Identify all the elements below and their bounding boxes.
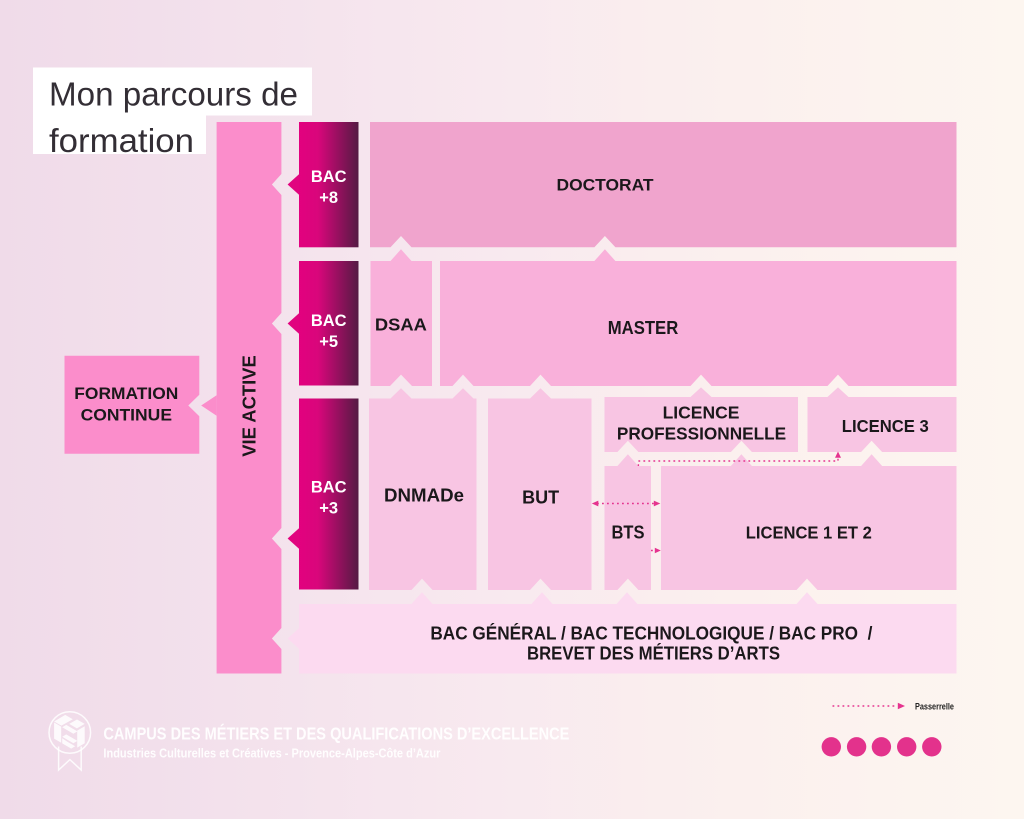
svg-text:CONTINUE: CONTINUE bbox=[81, 407, 172, 425]
svg-text:CAMPUS DES MÉTIERS ET DES QUAL: CAMPUS DES MÉTIERS ET DES QUALIFICATIONS… bbox=[103, 723, 569, 744]
svg-text:BTS: BTS bbox=[612, 523, 645, 543]
svg-text:MASTER: MASTER bbox=[608, 318, 679, 338]
svg-text:BREVET DES MÉTIERS D’ARTS: BREVET DES MÉTIERS D’ARTS bbox=[527, 643, 780, 664]
svg-text:+3: +3 bbox=[319, 500, 338, 518]
svg-text:FORMATION: FORMATION bbox=[74, 385, 178, 403]
svg-text:DOCTORAT: DOCTORAT bbox=[557, 175, 655, 194]
svg-text:BUT: BUT bbox=[522, 488, 559, 508]
svg-text:BAC: BAC bbox=[311, 479, 347, 497]
svg-text:LICENCE: LICENCE bbox=[663, 403, 740, 423]
svg-text:Mon parcours de: Mon parcours de bbox=[49, 76, 298, 113]
svg-text:PROFESSIONNELLE: PROFESSIONNELLE bbox=[617, 424, 786, 444]
svg-text:LICENCE 3: LICENCE 3 bbox=[842, 416, 929, 436]
svg-text:DSAA: DSAA bbox=[375, 315, 427, 335]
svg-text:formation: formation bbox=[49, 122, 194, 159]
svg-text:LICENCE 1 ET 2: LICENCE 1 ET 2 bbox=[746, 523, 872, 543]
svg-text:VIE ACTIVE: VIE ACTIVE bbox=[239, 355, 260, 457]
svg-text:BAC: BAC bbox=[311, 168, 347, 186]
svg-text:Passerrelle: Passerrelle bbox=[915, 701, 954, 712]
svg-text:DNMADe: DNMADe bbox=[384, 486, 464, 506]
svg-text:BAC GÉNÉRAL / BAC TECHNOLOGIQU: BAC GÉNÉRAL / BAC TECHNOLOGIQUE / BAC PR… bbox=[430, 623, 872, 644]
svg-text:+8: +8 bbox=[319, 189, 338, 207]
svg-text:BAC: BAC bbox=[311, 312, 347, 330]
svg-text:Industries Culturelles et Créa: Industries Culturelles et Créatives - Pr… bbox=[103, 746, 440, 761]
svg-text:+5: +5 bbox=[319, 333, 338, 351]
